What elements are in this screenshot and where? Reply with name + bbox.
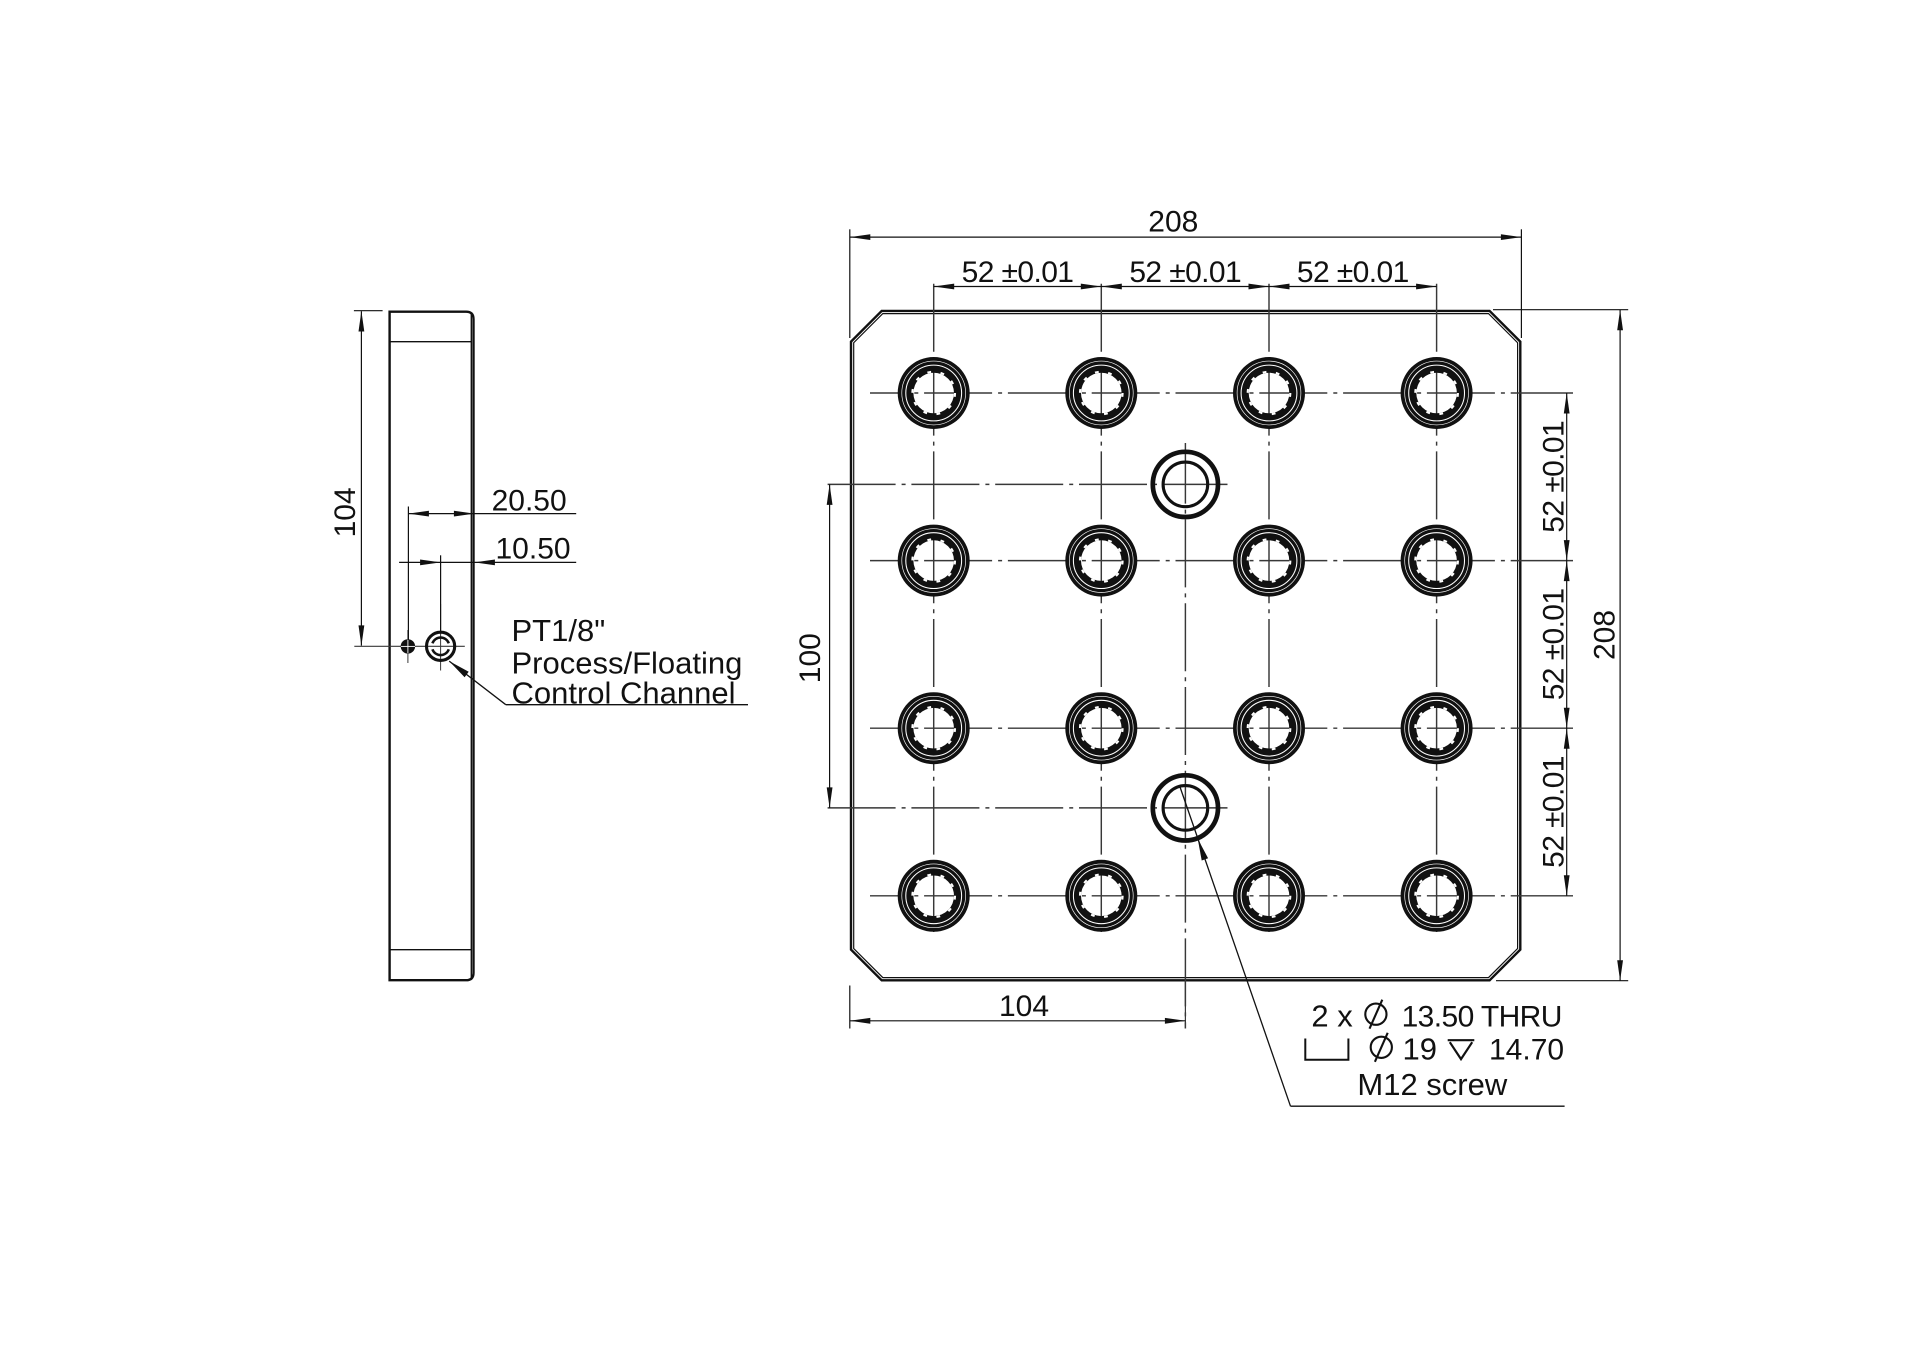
svg-text:52 ±0.01: 52 ±0.01	[1297, 256, 1409, 289]
svg-text:19: 19	[1403, 1031, 1437, 1066]
svg-text:20.50: 20.50	[492, 484, 567, 517]
svg-text:13.50 THRU: 13.50 THRU	[1402, 1000, 1562, 1033]
svg-text:M12 screw: M12 screw	[1357, 1067, 1507, 1102]
svg-text:52 ±0.01: 52 ±0.01	[1538, 421, 1571, 533]
svg-text:10.50: 10.50	[496, 533, 571, 566]
svg-text:208: 208	[1589, 610, 1622, 660]
svg-text:208: 208	[1148, 206, 1198, 239]
svg-text:52 ±0.01: 52 ±0.01	[1538, 589, 1571, 701]
svg-text:52 ±0.01: 52 ±0.01	[1538, 756, 1571, 868]
svg-text:100: 100	[794, 633, 827, 683]
svg-text:52 ±0.01: 52 ±0.01	[962, 256, 1074, 289]
svg-text:104: 104	[329, 487, 362, 537]
svg-text:2 x: 2 x	[1311, 998, 1353, 1033]
svg-text:104: 104	[999, 990, 1049, 1023]
svg-text:14.70: 14.70	[1489, 1033, 1564, 1066]
svg-text:52 ±0.01: 52 ±0.01	[1129, 256, 1241, 289]
svg-text:PT1/8": PT1/8"	[512, 613, 606, 648]
svg-text:Control Channel: Control Channel	[512, 675, 736, 710]
